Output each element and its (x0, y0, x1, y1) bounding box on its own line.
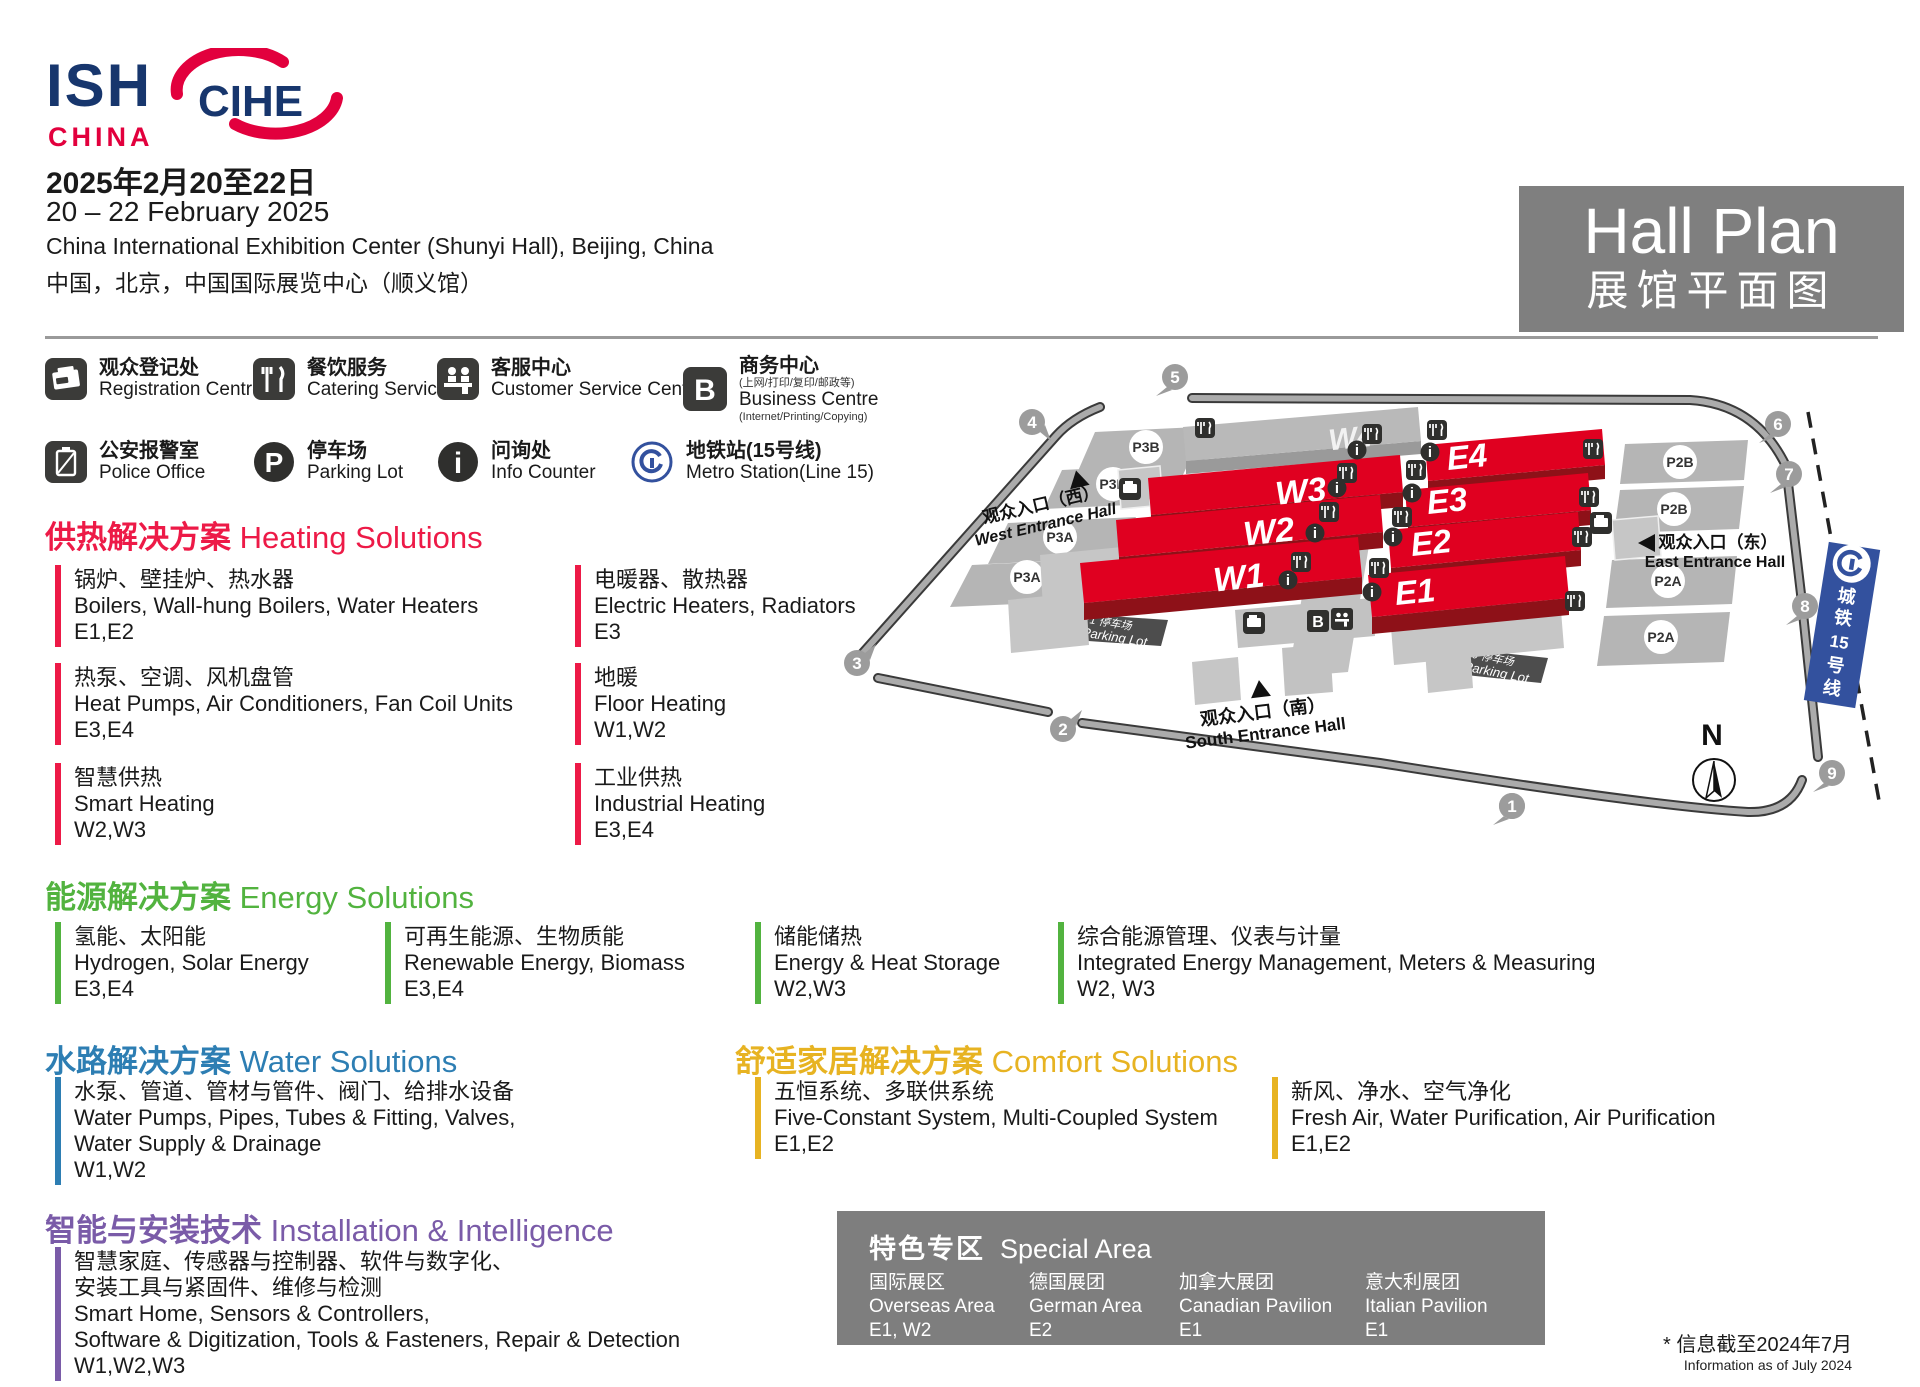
svg-text:号: 号 (1825, 654, 1846, 677)
svg-text:i: i (1313, 525, 1317, 542)
svg-text:15: 15 (1828, 631, 1850, 653)
svg-text:P3B: P3B (1132, 439, 1159, 455)
svg-text:E1: E1 (1393, 571, 1437, 612)
svg-text:9: 9 (1827, 764, 1836, 783)
svg-text:i: i (1391, 529, 1395, 546)
svg-text:2: 2 (1058, 720, 1067, 739)
svg-text:P2B: P2B (1666, 454, 1693, 470)
svg-text:E3: E3 (1425, 480, 1469, 521)
map-registration-icon-west (1119, 478, 1141, 500)
svg-text:4: 4 (1027, 413, 1037, 432)
svg-text:P3A: P3A (1013, 569, 1040, 585)
svg-text:1: 1 (1507, 797, 1516, 816)
north-compass: N (1693, 719, 1735, 801)
svg-text:i: i (1335, 480, 1339, 497)
svg-text:线: 线 (1822, 676, 1843, 700)
svg-text:5: 5 (1170, 368, 1179, 387)
svg-text:E2: E2 (1409, 522, 1454, 563)
svg-text:城: 城 (1836, 584, 1857, 608)
map-registration-icon-east (1590, 512, 1612, 534)
svg-text:East Entrance Hall: East Entrance Hall (1645, 554, 1786, 571)
map-registration-icon-south (1243, 612, 1265, 634)
svg-text:E4: E4 (1445, 436, 1489, 477)
svg-text:7: 7 (1784, 465, 1793, 484)
svg-text:8: 8 (1800, 597, 1809, 616)
svg-text:P2A: P2A (1654, 573, 1681, 589)
svg-text:6: 6 (1773, 415, 1782, 434)
hall-plan-page: ISH CHINA CIHE 2025年2月20至22日 20 – 22 Feb… (0, 0, 1920, 1387)
svg-text:N: N (1701, 719, 1723, 752)
svg-text:W1: W1 (1212, 556, 1267, 599)
svg-text:i: i (1370, 584, 1374, 601)
svg-text:P2A: P2A (1647, 629, 1674, 645)
svg-text:i: i (1428, 444, 1432, 461)
svg-text:铁: 铁 (1833, 606, 1854, 630)
svg-text:观众入口（东）: 观众入口（东） (1658, 532, 1778, 552)
svg-text:i: i (1410, 485, 1414, 502)
svg-text:i: i (1355, 442, 1359, 459)
svg-text:i: i (1286, 572, 1290, 589)
map-business-icon: B (1307, 610, 1329, 632)
east-entrance-label: 观众入口（东） East Entrance Hall (1638, 532, 1785, 571)
hall-plan-map: P3B P3B P3A P3A P2B P2B P2A P2A P1 停车场 P… (0, 0, 1920, 1387)
svg-text:3: 3 (852, 654, 861, 673)
map-customer-service-icon (1331, 608, 1353, 630)
svg-text:B: B (1312, 614, 1324, 631)
metro-station-sign: 城 铁 15 号 线 (1804, 541, 1881, 708)
svg-text:P2B: P2B (1660, 501, 1687, 517)
